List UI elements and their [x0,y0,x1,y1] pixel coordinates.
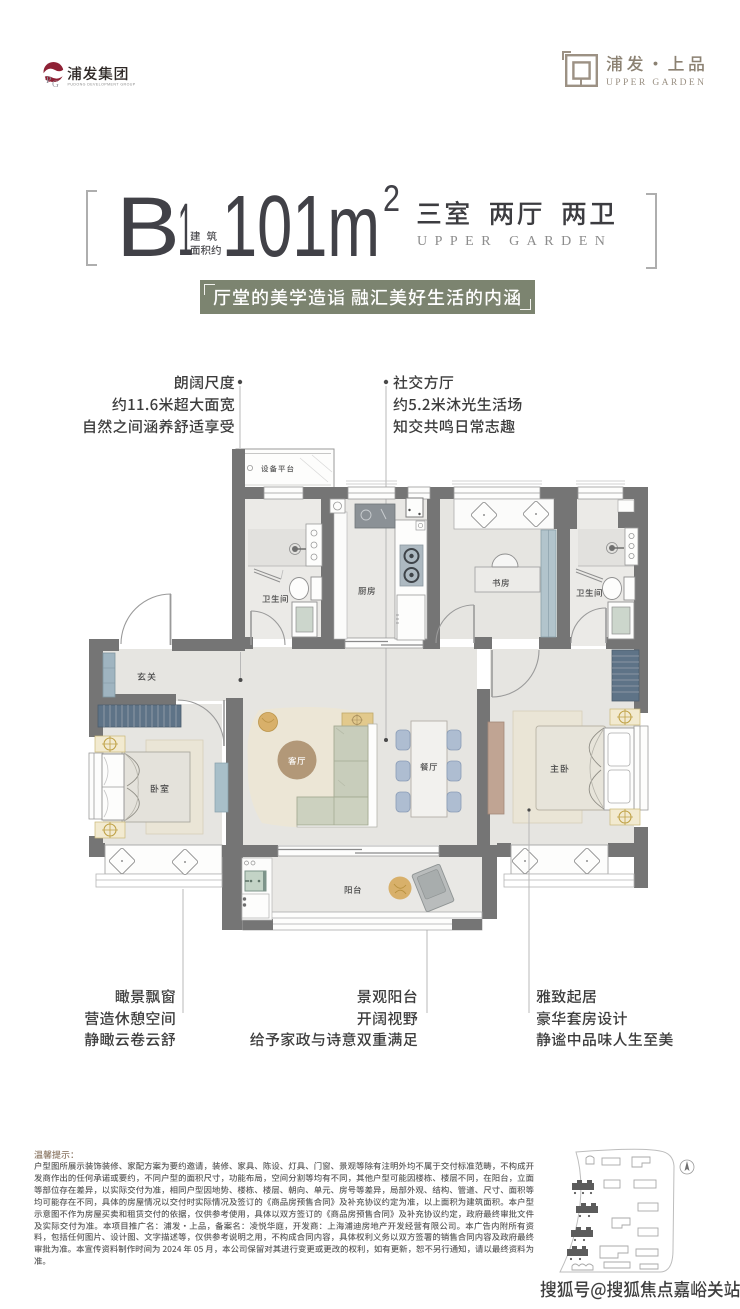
svg-text:2: 2 [383,178,400,219]
svg-text:卫生间: 卫生间 [576,587,603,599]
svg-text:阳台: 阳台 [344,884,362,896]
svg-text:B: B [116,180,180,270]
svg-text:客厅: 客厅 [288,755,306,767]
svg-text:厨房: 厨房 [358,585,376,597]
svg-text:PUDONG DEVELOPMENT GROUP: PUDONG DEVELOPMENT GROUP [68,83,136,87]
svg-text:浦发集团: 浦发集团 [67,63,129,84]
svg-text:浦发·上品: 浦发·上品 [606,50,709,75]
svg-text:卫生间: 卫生间 [262,593,289,605]
svg-text:书房: 书房 [492,577,510,589]
svg-text:P: P [46,76,51,86]
svg-text:玄关: 玄关 [137,670,157,683]
svg-text:设备平台: 设备平台 [261,464,295,475]
svg-text:面积约: 面积约 [190,243,222,258]
svg-text:主卧: 主卧 [550,762,570,775]
svg-text:101m: 101m [222,178,380,270]
svg-text:餐厅: 餐厅 [420,761,438,773]
svg-text:G: G [52,80,59,90]
svg-text:UPPER GARDEN: UPPER GARDEN [606,78,706,88]
svg-text:建筑: 建筑 [190,229,223,244]
svg-text:卧室: 卧室 [150,782,170,795]
